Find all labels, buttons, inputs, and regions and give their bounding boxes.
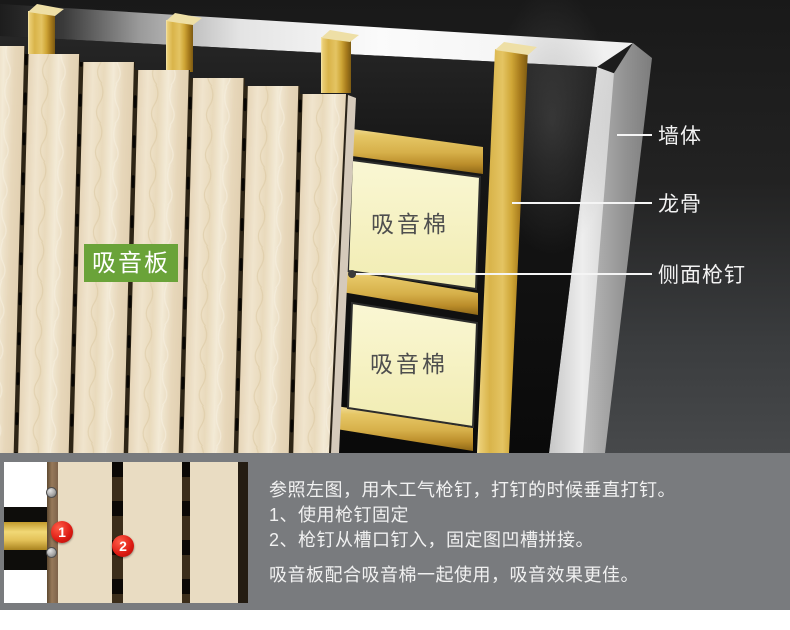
product-install-diagram-page: 吸音棉 吸音棉 吸音板 墙体 龙骨 侧面枪钉 <box>0 0 790 630</box>
instruction-intro: 参照左图，用木工气枪钉，打钉的时候垂直打钉。 <box>269 478 676 503</box>
acoustic-cotton-label-2: 吸音棉 <box>370 351 448 377</box>
keel-post <box>166 20 193 72</box>
keel-post <box>321 37 351 93</box>
keel-label: 龙骨 <box>658 193 702 216</box>
step-badge-1: 1 <box>51 521 73 543</box>
nailing-detail-photo: 1 2 <box>4 462 248 603</box>
side-nail-label: 侧面枪钉 <box>658 264 746 287</box>
side-nail-point <box>348 270 356 278</box>
photo-keel-strip <box>4 522 47 550</box>
nail-icon <box>46 487 57 498</box>
slat-groove <box>238 462 248 603</box>
keel-post <box>28 11 55 59</box>
instruction-step-2: 2、枪钉从槽口钉入，固定图凹槽拼接。 <box>269 528 676 553</box>
bottom-white-strip <box>0 610 790 630</box>
step-badge-2: 2 <box>112 535 134 557</box>
instruction-note: 吸音板配合吸音棉一起使用，吸音效果更佳。 <box>269 563 676 588</box>
panel-tag-label: 吸音板 <box>92 250 170 277</box>
nail-icon <box>46 547 57 558</box>
instruction-panel: 1 2 参照左图，用木工气枪钉，打钉的时候垂直打钉。 1、使用枪钉固定 2、枪钉… <box>0 453 790 610</box>
wall-label: 墙体 <box>658 125 702 148</box>
instruction-text: 参照左图，用木工气枪钉，打钉的时候垂直打钉。 1、使用枪钉固定 2、枪钉从槽口钉… <box>269 478 676 588</box>
acoustic-cotton-label-1: 吸音棉 <box>371 211 449 237</box>
slat-groove <box>182 462 190 603</box>
wall-structure-diagram: 吸音棉 吸音棉 吸音板 墙体 龙骨 侧面枪钉 <box>0 0 790 453</box>
acoustic-panel: 吸音板 <box>0 46 356 453</box>
slat-groove <box>112 462 123 603</box>
photo-panel-slats <box>58 462 248 603</box>
instruction-step-1: 1、使用枪钉固定 <box>269 503 676 528</box>
